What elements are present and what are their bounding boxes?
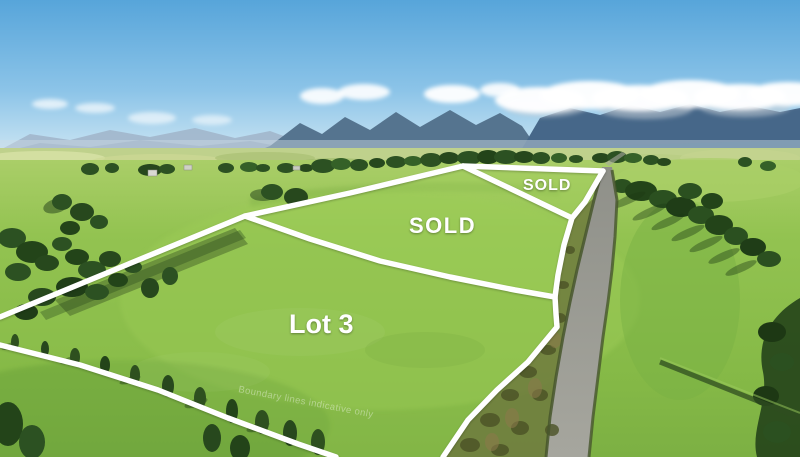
- sold-middle-label: SOLD: [409, 213, 476, 238]
- sold-upper-label: SOLD: [523, 177, 571, 194]
- photo-canvas: SOLD SOLD Lot 3 Boundary lines indicativ…: [0, 0, 800, 457]
- aerial-photo: SOLD SOLD Lot 3 Boundary lines indicativ…: [0, 0, 800, 457]
- lot3-label: Lot 3: [289, 309, 354, 339]
